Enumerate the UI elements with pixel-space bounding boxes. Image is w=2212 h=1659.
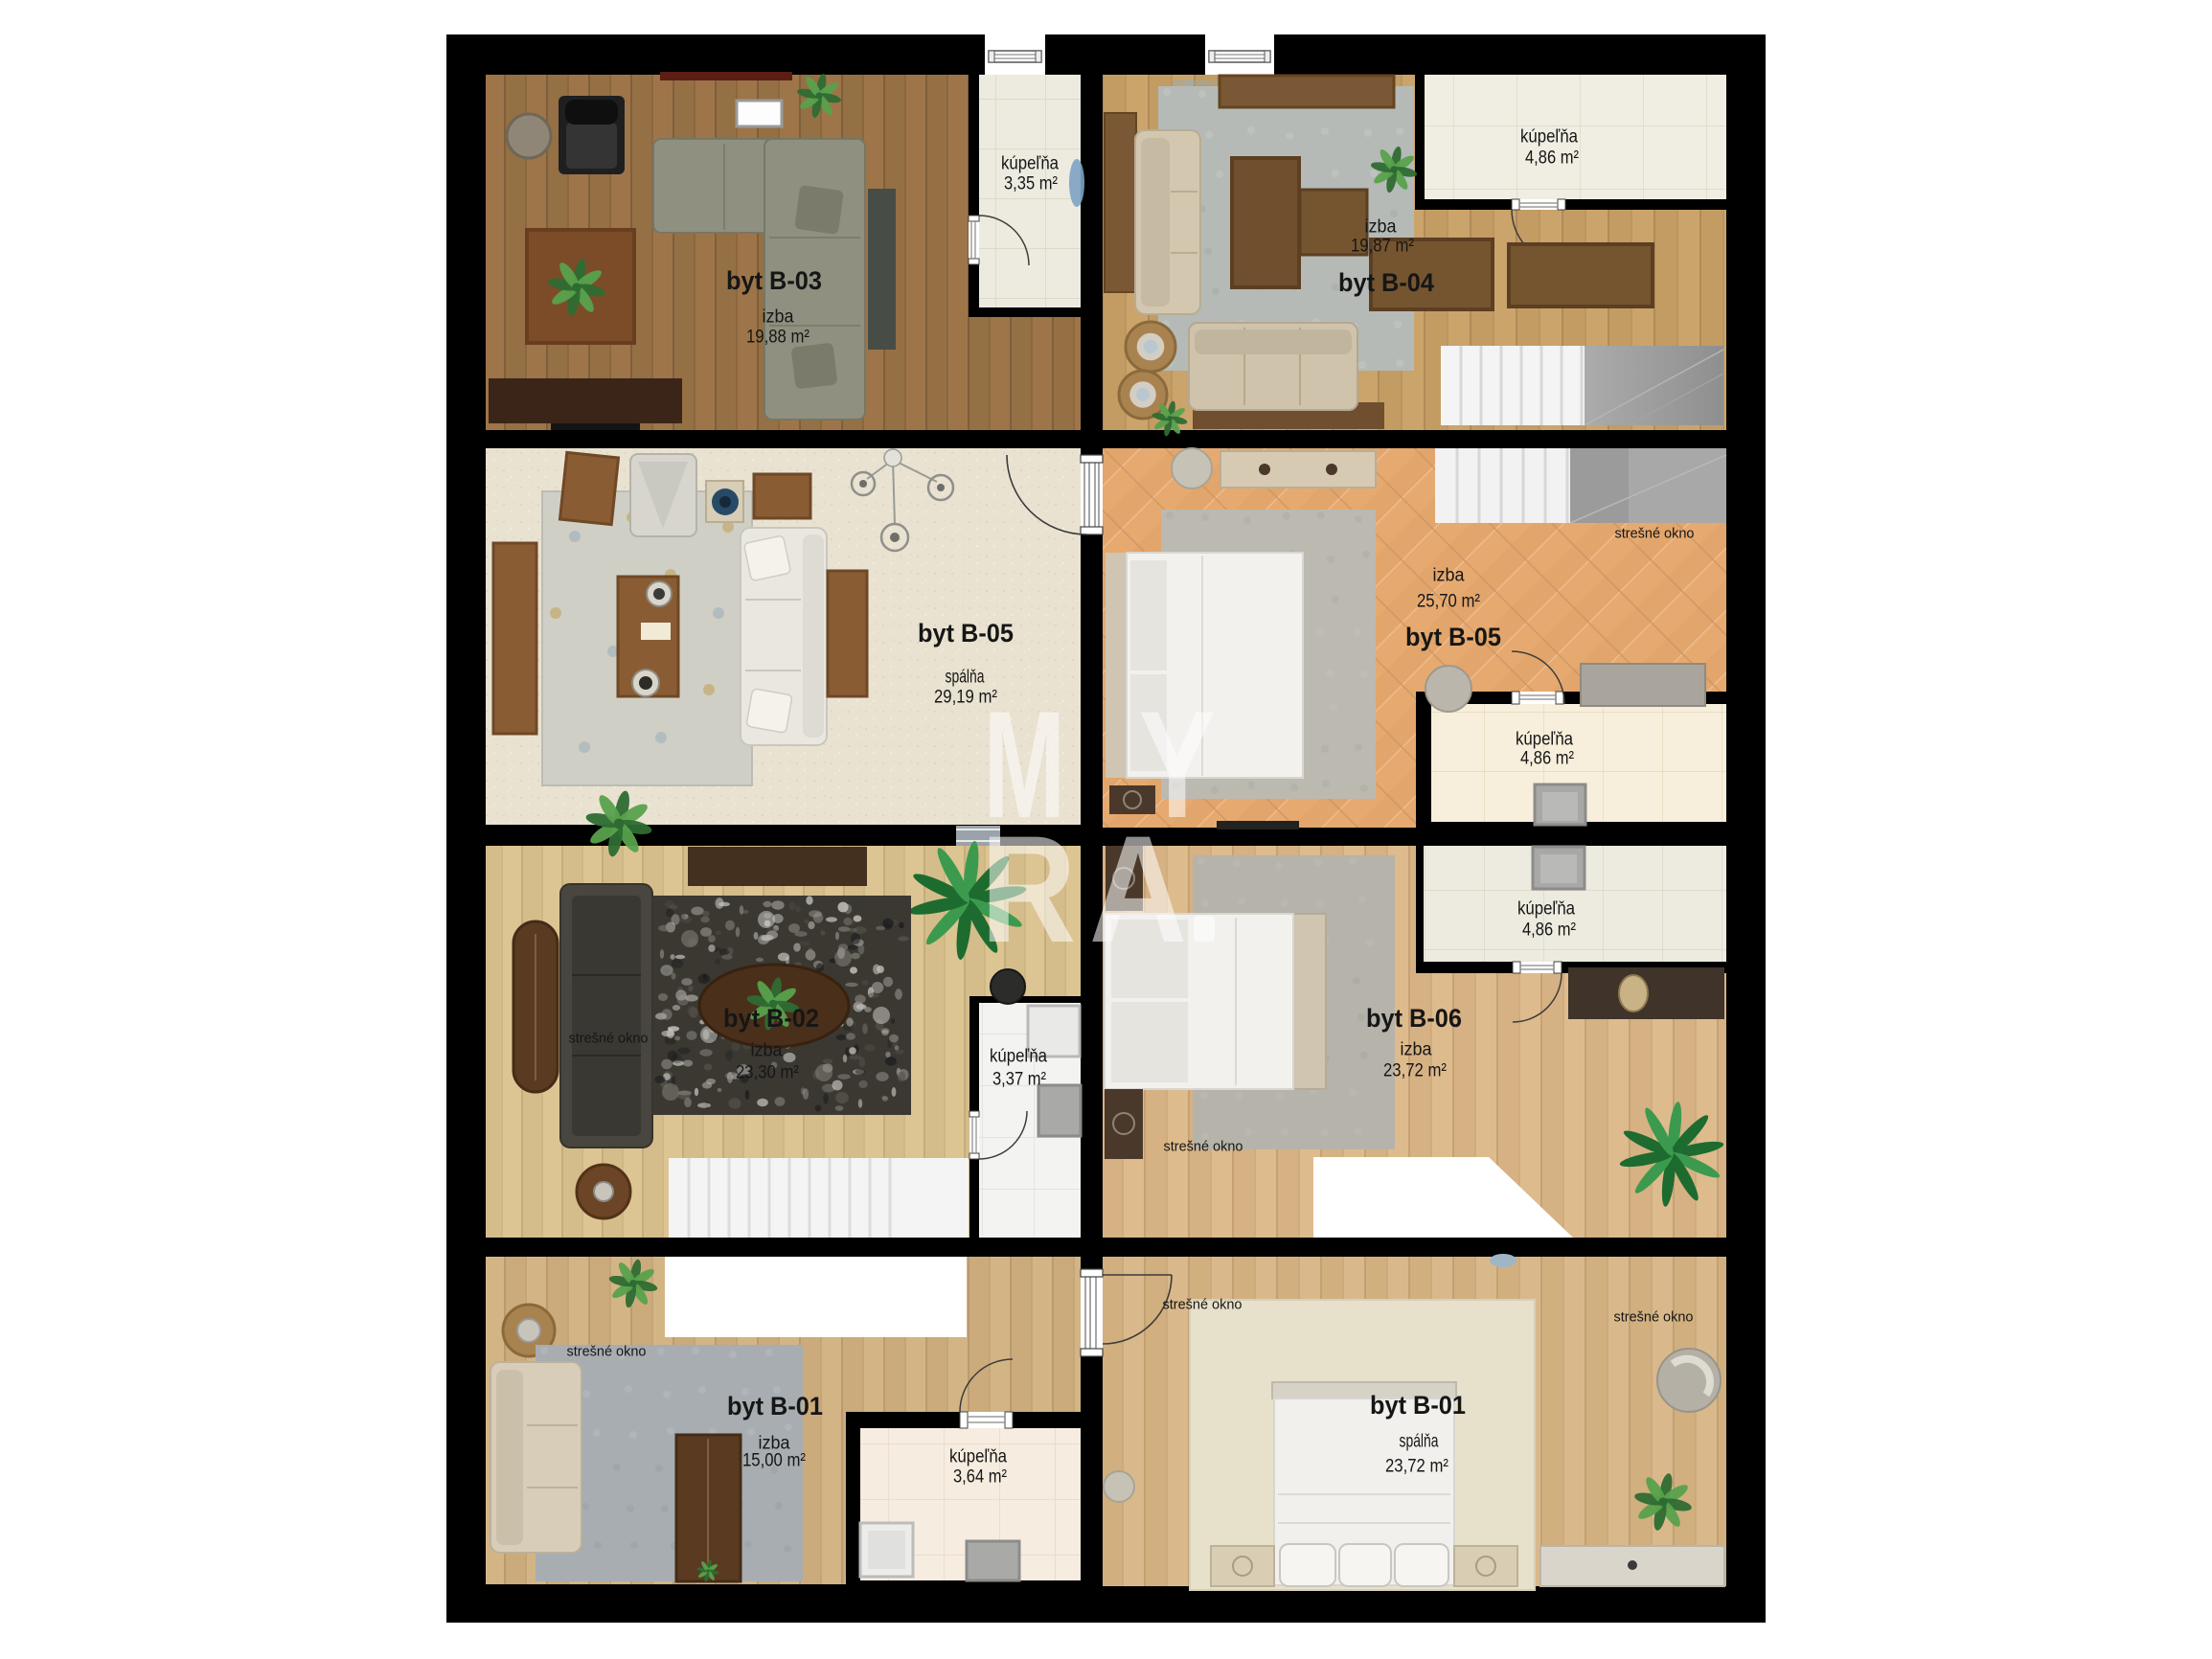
- svg-text:23,72 m²: 23,72 m²: [1383, 1061, 1447, 1081]
- svg-text:izba: izba: [1401, 1040, 1432, 1060]
- svg-text:4,86 m²: 4,86 m²: [1525, 148, 1579, 169]
- svg-text:kúpeľňa: kúpeľňa: [1517, 899, 1575, 920]
- svg-text:strešné okno: strešné okno: [1173, 78, 1217, 87]
- svg-text:23,30 m²: 23,30 m²: [736, 1063, 799, 1083]
- svg-text:19,87 m²: 19,87 m²: [1351, 237, 1414, 257]
- svg-text:strešné okno: strešné okno: [567, 1344, 647, 1360]
- svg-text:23,72 m²: 23,72 m²: [1385, 1457, 1448, 1477]
- svg-text:19,88 m²: 19,88 m²: [746, 328, 810, 348]
- svg-text:byt B-04: byt B-04: [1338, 268, 1434, 297]
- svg-text:izba: izba: [763, 307, 794, 328]
- svg-text:strešné okno: strešné okno: [1164, 1139, 1243, 1155]
- svg-text:byt B-06: byt B-06: [1366, 1004, 1462, 1033]
- svg-text:spálňa: spálňa: [946, 668, 985, 688]
- svg-text:15,00 m²: 15,00 m²: [742, 1451, 806, 1471]
- svg-text:3,37 m²: 3,37 m²: [992, 1070, 1046, 1090]
- svg-text:strešné okno: strešné okno: [1614, 1309, 1694, 1326]
- svg-text:kúpeľňa: kúpeľňa: [990, 1047, 1047, 1067]
- svg-text:kúpeľňa: kúpeľňa: [1520, 127, 1578, 148]
- svg-text:byt B-03: byt B-03: [726, 266, 822, 295]
- svg-text:4,86 m²: 4,86 m²: [1522, 920, 1576, 941]
- svg-text:kúpeľňa: kúpeľňa: [949, 1447, 1007, 1467]
- svg-text:strešné okno: strešné okno: [1163, 1297, 1243, 1313]
- svg-text:A: A: [1089, 804, 1187, 973]
- svg-text:byt B-01: byt B-01: [727, 1392, 823, 1420]
- svg-text:izba: izba: [751, 1041, 783, 1061]
- svg-text:3,35 m²: 3,35 m²: [1004, 174, 1058, 194]
- svg-text:25,70 m²: 25,70 m²: [1417, 592, 1480, 612]
- svg-text:spálňa: spálňa: [1400, 1432, 1439, 1452]
- svg-text:3,64 m²: 3,64 m²: [953, 1467, 1007, 1488]
- svg-text:4,86 m²: 4,86 m²: [1520, 749, 1574, 769]
- svg-text:izba: izba: [1433, 566, 1465, 586]
- svg-text:byt B-01: byt B-01: [1370, 1391, 1466, 1420]
- svg-text:R: R: [981, 804, 1077, 974]
- svg-text:kúpeľňa: kúpeľňa: [1001, 154, 1059, 174]
- svg-text:strešné okno: strešné okno: [1615, 526, 1695, 542]
- svg-text:byt B-05: byt B-05: [1405, 623, 1501, 651]
- svg-text:kúpeľňa: kúpeľňa: [1516, 730, 1573, 750]
- svg-text:izba: izba: [1365, 217, 1397, 238]
- svg-text:byt B-05: byt B-05: [918, 619, 1014, 648]
- svg-text:byt B-02: byt B-02: [723, 1004, 819, 1033]
- svg-text:strešné okno: strešné okno: [569, 1031, 649, 1047]
